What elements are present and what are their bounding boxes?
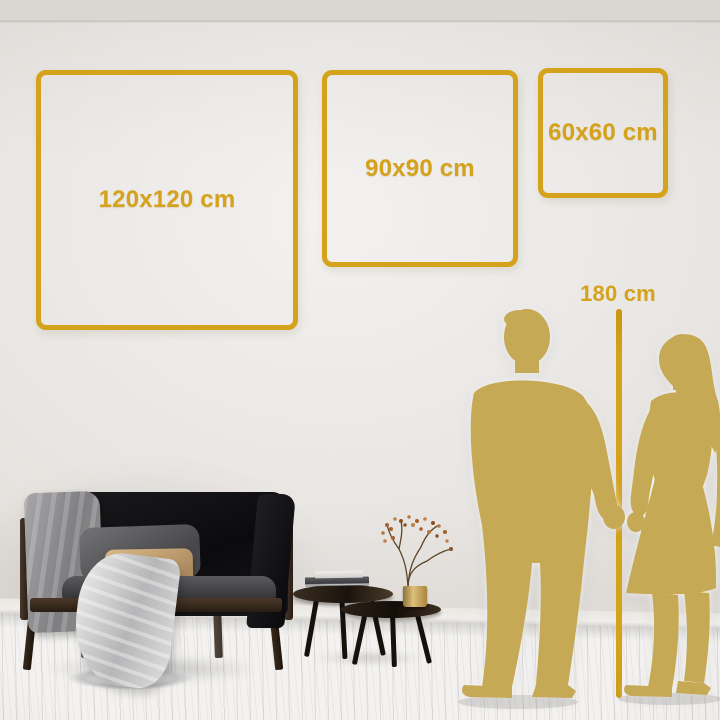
ceiling-line [0, 0, 720, 23]
woman-silhouette [624, 334, 720, 697]
size-label-90: 90x90 cm [365, 155, 475, 183]
brass-vase [403, 586, 427, 607]
book-white [315, 571, 363, 579]
size-frame-90: 90x90 cm [322, 70, 518, 267]
size-label-60: 60x60 cm [548, 119, 658, 147]
size-frame-60: 60x60 cm [538, 68, 668, 198]
man-silhouette [462, 309, 625, 698]
size-label-120: 120x120 cm [99, 186, 236, 214]
table-leg [390, 616, 397, 667]
size-guide-scene: 120x120 cm 90x90 cm 60x60 cm 180 cm [0, 0, 720, 720]
sofa [0, 470, 320, 720]
couple-silhouettes [430, 295, 720, 720]
size-frame-120: 120x120 cm [36, 70, 298, 330]
